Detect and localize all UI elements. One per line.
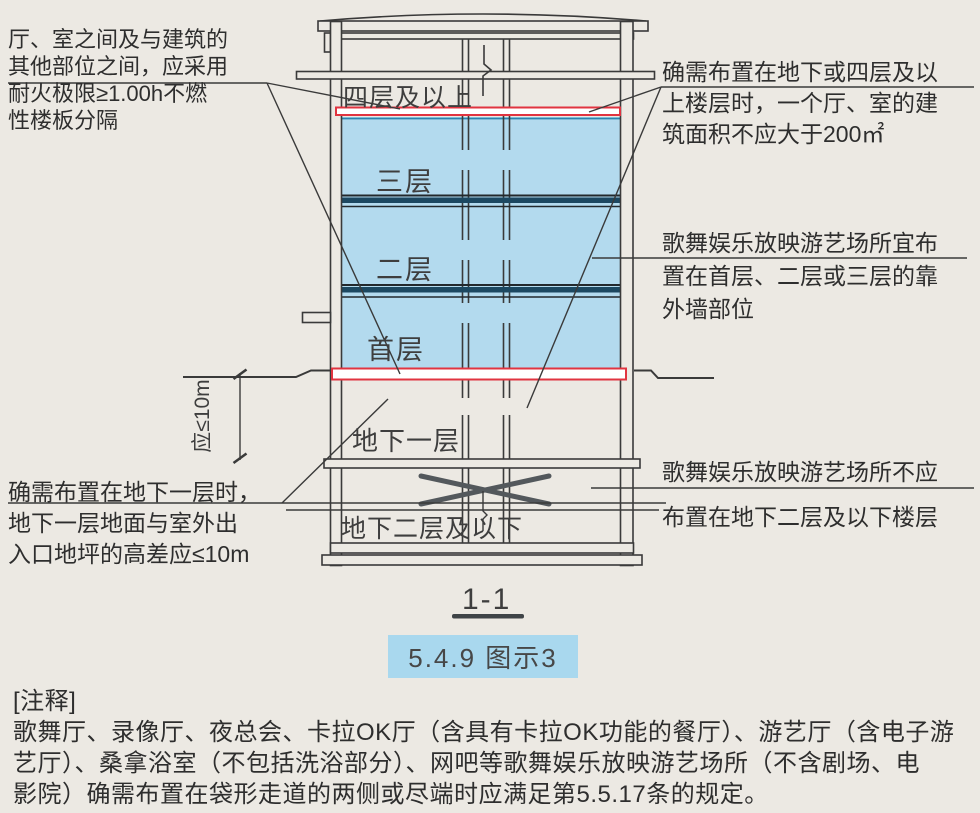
annotation-line: 确需布置在地下一层时， — [8, 477, 261, 508]
annotation-line: 耐火极限≥1.00h不燃 — [8, 80, 228, 107]
annotation-line: 其他部位之间，应采用 — [8, 53, 228, 80]
annotation-line: 筑面积不应大于200㎡ — [662, 119, 938, 150]
floor-label-2f: 二层 — [376, 255, 434, 285]
foundation-slab — [322, 555, 642, 565]
ground-line-left — [183, 371, 330, 378]
floor-label-3f: 三层 — [376, 167, 434, 197]
note-block: [注释] 歌舞厅、录像厅、夜总会、卡拉OK厅（含具有卡拉OK功能的餐厅）、游艺厅… — [13, 686, 973, 810]
top-ceiling-slab — [331, 33, 634, 39]
note-line: 影院）确需布置在袋形走道的两侧或尽端时应满足第5.5.17条的规定。 — [13, 779, 973, 810]
note-line: 歌舞厅、录像厅、夜总会、卡拉OK厅（含具有卡拉OK功能的餐厅）、游艺厅（含电子游 — [13, 717, 973, 748]
floor-label-4f: 四层及以上 — [343, 84, 473, 112]
annotation-line: 歌舞娱乐放映游艺场所宜布 — [662, 227, 938, 260]
upper-floor-slab — [297, 72, 655, 80]
depth-dimension-label: 应≤10m — [191, 379, 214, 452]
floor-label-b2: 地下二层及以下 — [341, 515, 523, 543]
basement1-floor-slab — [324, 459, 640, 468]
annotation-line: 厅、室之间及与建筑的 — [8, 26, 228, 53]
section-mark-label: 1-1 — [462, 583, 511, 616]
code-figure-page: 应≤10m 四层及以上 三层 二层 首层 地下一层 地下二层及以下 — [0, 0, 980, 813]
annotation-line: 确需布置在地下或四层及以 — [662, 57, 938, 88]
annotation-basement2-prohibited: 歌舞娱乐放映游艺场所不应 布置在地下二层及以下楼层 — [662, 458, 938, 531]
annotation-line: 外墙部位 — [662, 293, 938, 326]
annotation-line: 上楼层时，一个厅、室的建 — [662, 88, 938, 119]
annotation-line: 入口地坪的高差应≤10m — [8, 539, 261, 570]
note-line: 艺厅）、桑拿浴室（不包括洗浴部分）、网吧等歌舞娱乐放映游艺场所（不含剧场、电 — [13, 748, 973, 779]
basement-bottom-slab — [331, 543, 634, 553]
annotation-line: 地下一层地面与室外出 — [8, 508, 261, 539]
roof-slab — [318, 21, 648, 31]
figure-number-badge: 5.4.9 图示3 — [388, 635, 578, 678]
note-line: [注释] — [13, 686, 973, 717]
floor-label-1f: 首层 — [367, 335, 425, 365]
annotation-area-limit: 确需布置在地下或四层及以 上楼层时，一个厅、室的建 筑面积不应大于200㎡ — [662, 57, 938, 150]
annotation-line: 性楼板分隔 — [8, 107, 228, 134]
annotation-fire-slab: 厅、室之间及与建筑的 其他部位之间，应采用 耐火极限≥1.00h不燃 性楼板分隔 — [8, 26, 228, 134]
section-mark-underline — [452, 614, 524, 619]
annotation-preferred-floors: 歌舞娱乐放映游艺场所宜布 置在首层、二层或三层的靠 外墙部位 — [662, 227, 938, 326]
floor-label-b1: 地下一层 — [352, 426, 460, 456]
annotation-line: 置在首层、二层或三层的靠 — [662, 260, 938, 293]
annotation-basement1-height: 确需布置在地下一层时， 地下一层地面与室外出 入口地坪的高差应≤10m — [8, 477, 261, 570]
depth-dimension — [234, 370, 247, 464]
left-parapet — [325, 33, 331, 52]
left-wall — [331, 22, 342, 566]
fire-slab-ground-red — [332, 369, 626, 380]
right-wall — [621, 22, 634, 566]
break-line-symbol — [483, 45, 491, 96]
annotation-line: 布置在地下二层及以下楼层 — [662, 503, 938, 531]
roof-arc — [320, 14, 646, 21]
ground-line-right — [634, 371, 714, 379]
entrance-canopy — [303, 313, 331, 323]
highlighted-floors-area — [342, 117, 620, 369]
annotation-line: 歌舞娱乐放映游艺场所不应 — [662, 458, 938, 486]
